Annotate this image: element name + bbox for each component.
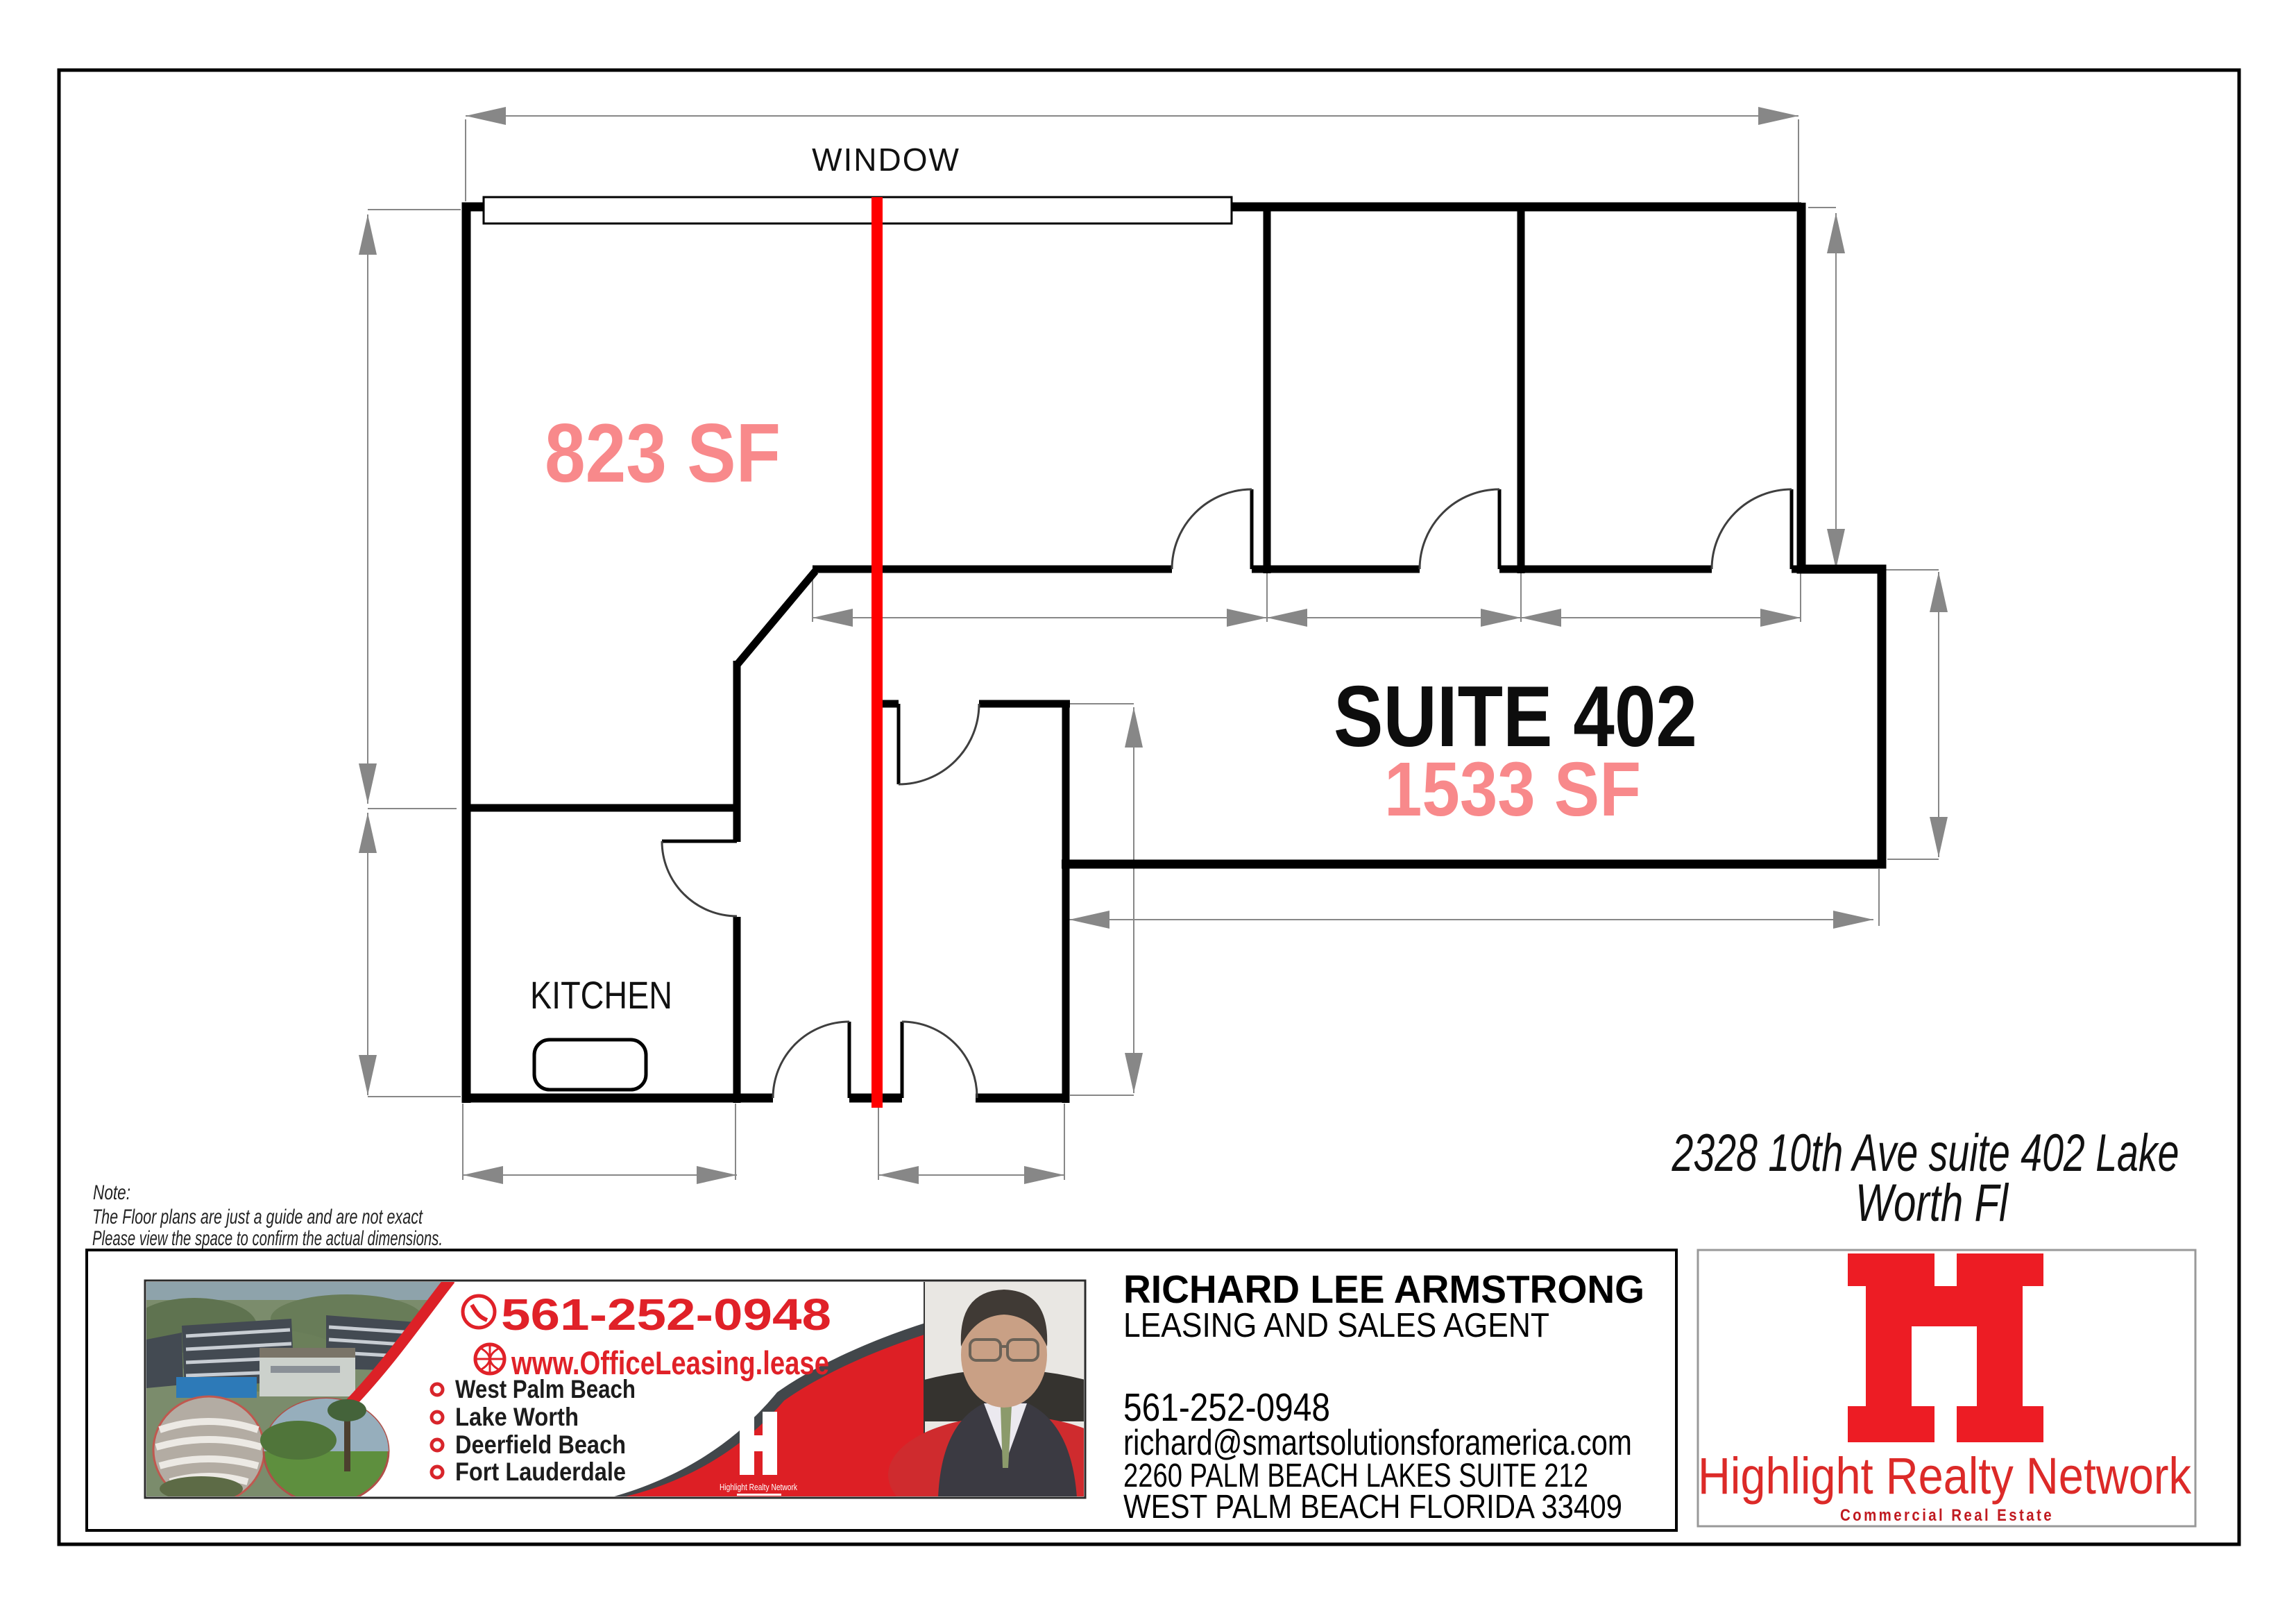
svg-text:The Floor plans are just a gui: The Floor plans are just a guide and are…	[92, 1206, 423, 1228]
svg-text:Highlight Realty Network: Highlight Realty Network	[720, 1482, 797, 1492]
svg-text:823 SF: 823 SF	[545, 407, 781, 500]
svg-text:West Palm Beach: West Palm Beach	[455, 1375, 636, 1403]
svg-text:Worth Fl: Worth Fl	[1855, 1174, 2009, 1233]
svg-text:Fort Lauderdale: Fort Lauderdale	[455, 1458, 626, 1486]
svg-text:Note:: Note:	[93, 1181, 130, 1204]
svg-text:Deerfield Beach: Deerfield Beach	[455, 1430, 626, 1459]
svg-text:Please view the space to confi: Please view the space to confirm the act…	[92, 1227, 443, 1250]
svg-text:Lake Worth: Lake Worth	[455, 1403, 579, 1431]
svg-text:WINDOW: WINDOW	[812, 142, 960, 178]
svg-text:RICHARD LEE ARMSTRONG: RICHARD LEE ARMSTRONG	[1123, 1267, 1644, 1312]
svg-text:1533 SF: 1533 SF	[1384, 747, 1641, 832]
svg-text:Highlight Realty Network: Highlight Realty Network	[1698, 1447, 2192, 1505]
svg-text:WEST PALM BEACH FLORIDA 33409: WEST PALM BEACH FLORIDA 33409	[1123, 1489, 1622, 1526]
svg-text:561-252-0948: 561-252-0948	[501, 1290, 831, 1340]
svg-text:KITCHEN: KITCHEN	[530, 973, 672, 1017]
svg-text:Commercial Real Estate: Commercial Real Estate	[1840, 1506, 2054, 1525]
svg-text:LEASING AND SALES AGENT: LEASING AND SALES AGENT	[1123, 1307, 1549, 1344]
